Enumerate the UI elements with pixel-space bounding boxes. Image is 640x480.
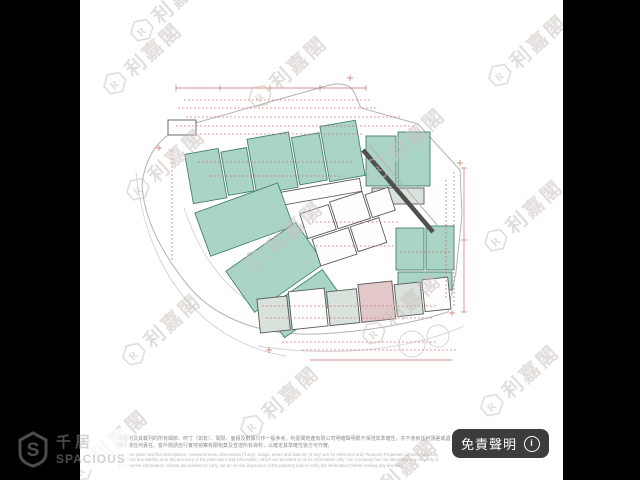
info-icon: i: [524, 436, 540, 452]
letterbox-right: [563, 0, 640, 480]
floorplan-image[interactable]: R利嘉閣R利嘉閣R利嘉閣R利嘉閣R利嘉閣R利嘉閣R利嘉閣R利嘉閣R利嘉閣R利嘉閣…: [80, 0, 563, 480]
spacious-s-icon: S: [16, 431, 50, 468]
disclaimer-english: The floor plans and the descriptions, me…: [118, 452, 452, 468]
brand-name-english: SPACIOUS: [56, 453, 126, 465]
disclaimer-button[interactable]: 免責聲明 i: [452, 429, 549, 458]
disclaimer-chinese: 本圖則及其載列的所有細節、呎寸（如有）、間隔、面積及數據只作一般參考，利嘉閣地產…: [118, 436, 452, 450]
letterbox-left: [0, 0, 80, 480]
spacious-logo: S 千居 SPACIOUS: [16, 431, 126, 468]
disclaimer-text: 本圖則及其載列的所有細節、呎寸（如有）、間隔、面積及數據只作一般參考，利嘉閣地產…: [118, 436, 452, 468]
disclaimer-button-label: 免責聲明: [461, 434, 517, 453]
svg-text:S: S: [27, 440, 40, 461]
brand-name-chinese: 千居: [56, 435, 126, 450]
floorplan-drawing: [80, 0, 563, 480]
